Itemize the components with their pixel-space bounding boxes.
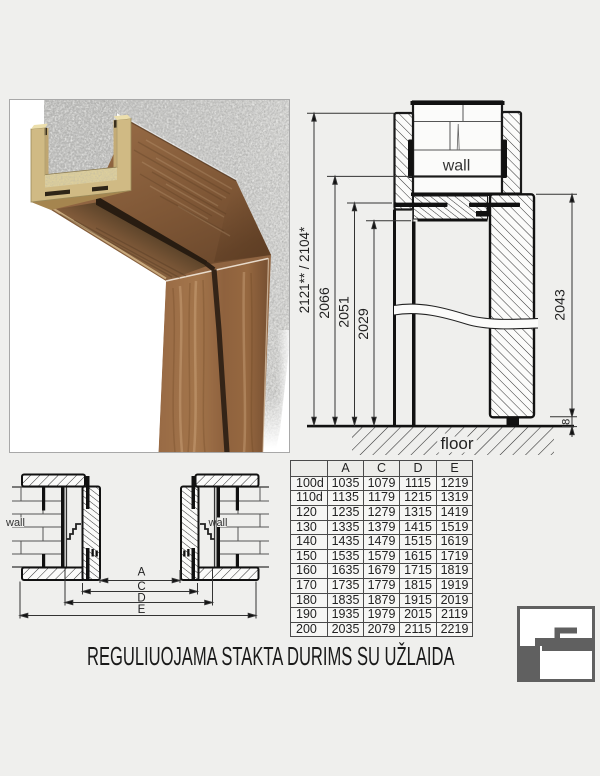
svg-text:floor: floor (440, 434, 473, 453)
svg-text:A: A (138, 567, 146, 579)
svg-text:2121** / 2104*: 2121** / 2104* (297, 227, 312, 313)
svg-text:C: C (137, 581, 145, 593)
svg-text:2066: 2066 (317, 287, 333, 319)
svg-text:wall: wall (442, 158, 471, 175)
svg-text:wall: wall (5, 517, 25, 529)
svg-text:E: E (138, 604, 146, 616)
svg-text:2043: 2043 (553, 289, 569, 321)
svg-text:2029: 2029 (356, 308, 372, 340)
svg-text:D: D (137, 593, 145, 605)
svg-text:wall: wall (208, 517, 228, 529)
svg-text:2051: 2051 (337, 296, 353, 328)
svg-text:8: 8 (560, 419, 572, 425)
